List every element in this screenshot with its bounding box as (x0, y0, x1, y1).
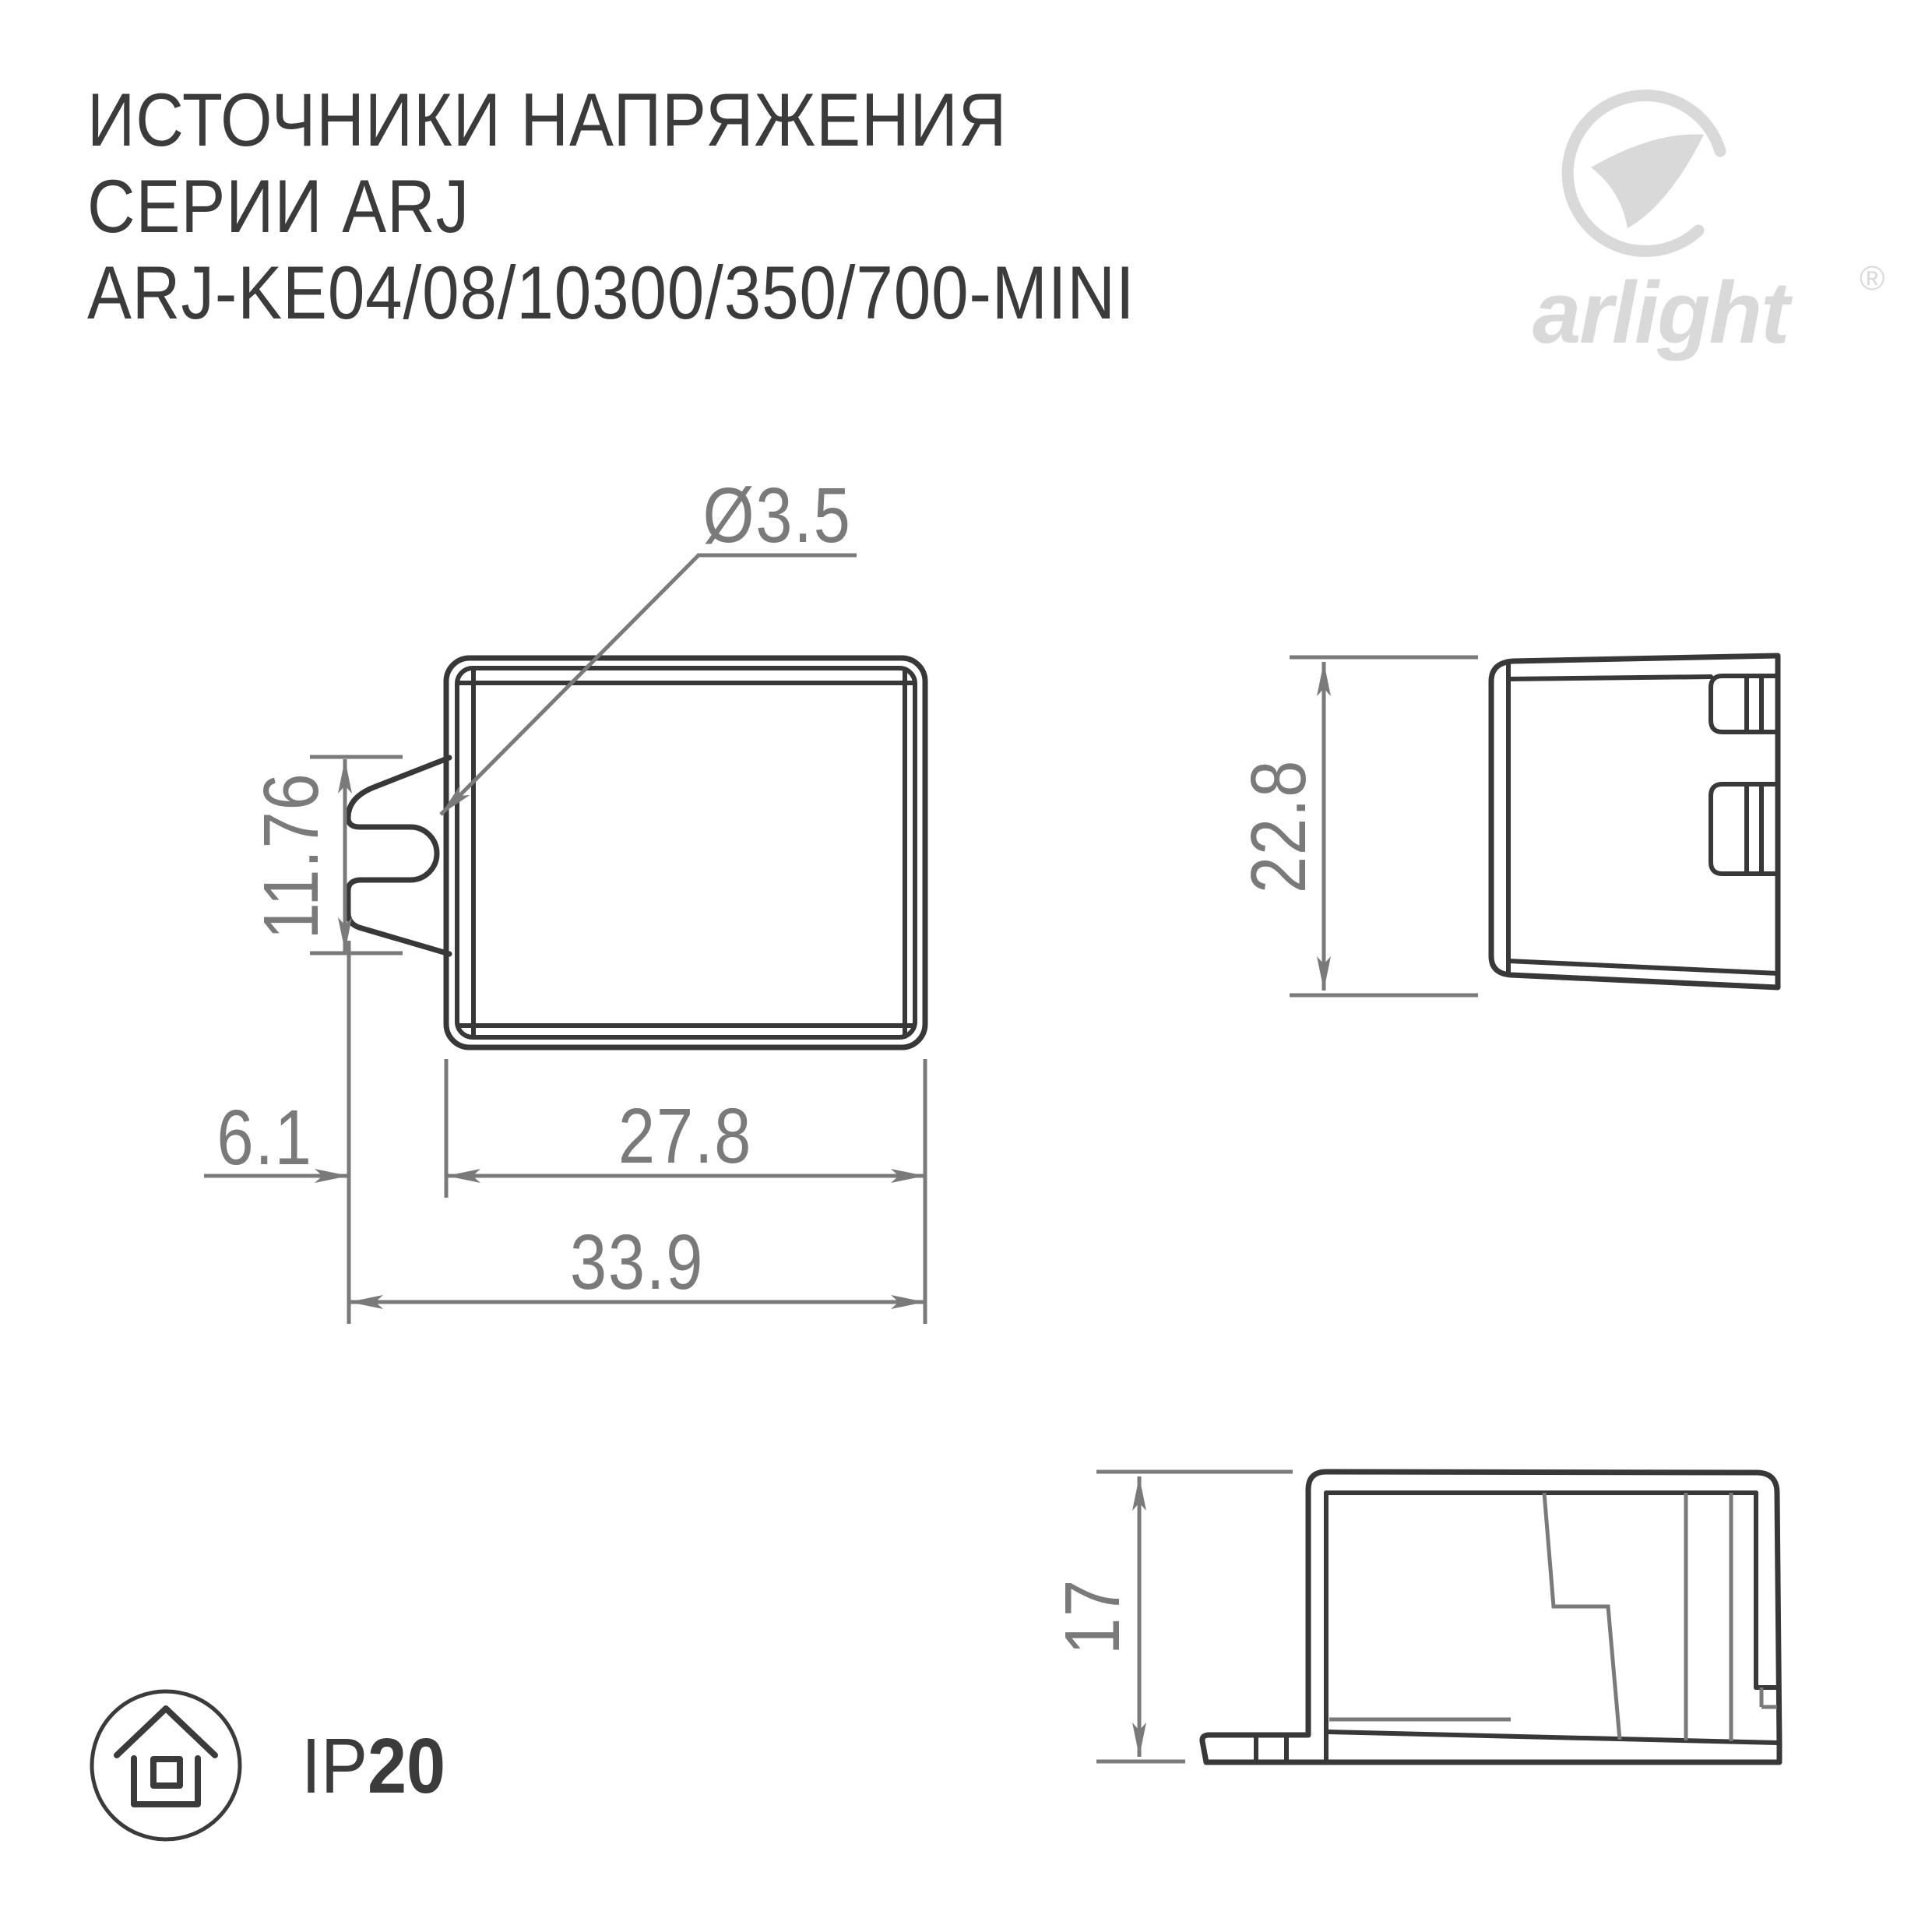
arlight-logo: arlight ® (1533, 96, 1884, 361)
dim-side-height: 22.8 (1234, 759, 1321, 893)
logo-registered-mark: ® (1860, 259, 1884, 297)
side-view-dimensions: 22.8 (1234, 657, 1478, 995)
side-inner-edge-top (1508, 677, 1711, 679)
logo-arrow-icon (1591, 135, 1704, 228)
side-view (1491, 656, 1778, 987)
dim-clip-offset: 6.1 (216, 1093, 312, 1181)
page-title-line2: СЕРИИ ARJ (87, 164, 470, 248)
dim-total-width: 33.9 (570, 1218, 704, 1305)
front-mounting-clip-outline (348, 758, 449, 954)
profile-view (1202, 1472, 1779, 1762)
front-body-outer-outline (446, 658, 925, 1047)
dim-clip-height: 11.76 (247, 772, 334, 940)
front-view-dimensions: Ø3.5 11.76 6.1 27.8 33.9 (204, 471, 925, 1324)
datasheet-page: ИСТОЧНИКИ НАПРЯЖЕНИЯ СЕРИИ ARJ ARJ-KE04/… (0, 0, 1932, 1932)
dim-hole-diameter: Ø3.5 (702, 471, 851, 558)
front-body-inner-outline (457, 668, 915, 1037)
house-window-icon (153, 1759, 180, 1786)
front-view (348, 658, 925, 1047)
logo-brand-text: arlight (1533, 264, 1793, 361)
profile-view-dimensions: 17 (1048, 1472, 1293, 1761)
page-title-line1: ИСТОЧНИКИ НАПРЯЖЕНИЯ (87, 78, 1007, 162)
technical-drawing-canvas: ИСТОЧНИКИ НАПРЯЖЕНИЯ СЕРИИ ARJ ARJ-KE04/… (0, 0, 1932, 1932)
side-body-outline (1491, 656, 1778, 987)
ip-rating-prefix: IP (301, 1723, 368, 1810)
title-block: ИСТОЧНИКИ НАПРЯЖЕНИЯ СЕРИИ ARJ ARJ-KE04/… (87, 78, 1135, 335)
ip-rating-value: 20 (368, 1723, 445, 1810)
indoor-use-icon (92, 1691, 240, 1839)
house-roof-icon (117, 1709, 215, 1755)
ip-rating-badge: IP 20 (92, 1691, 445, 1839)
dim-body-width: 27.8 (618, 1092, 752, 1179)
house-walls-icon (134, 1758, 198, 1804)
page-title-line3: ARJ-KE04/08/10300/350/700-MINI (87, 251, 1135, 335)
dim-profile-height: 17 (1048, 1578, 1135, 1655)
